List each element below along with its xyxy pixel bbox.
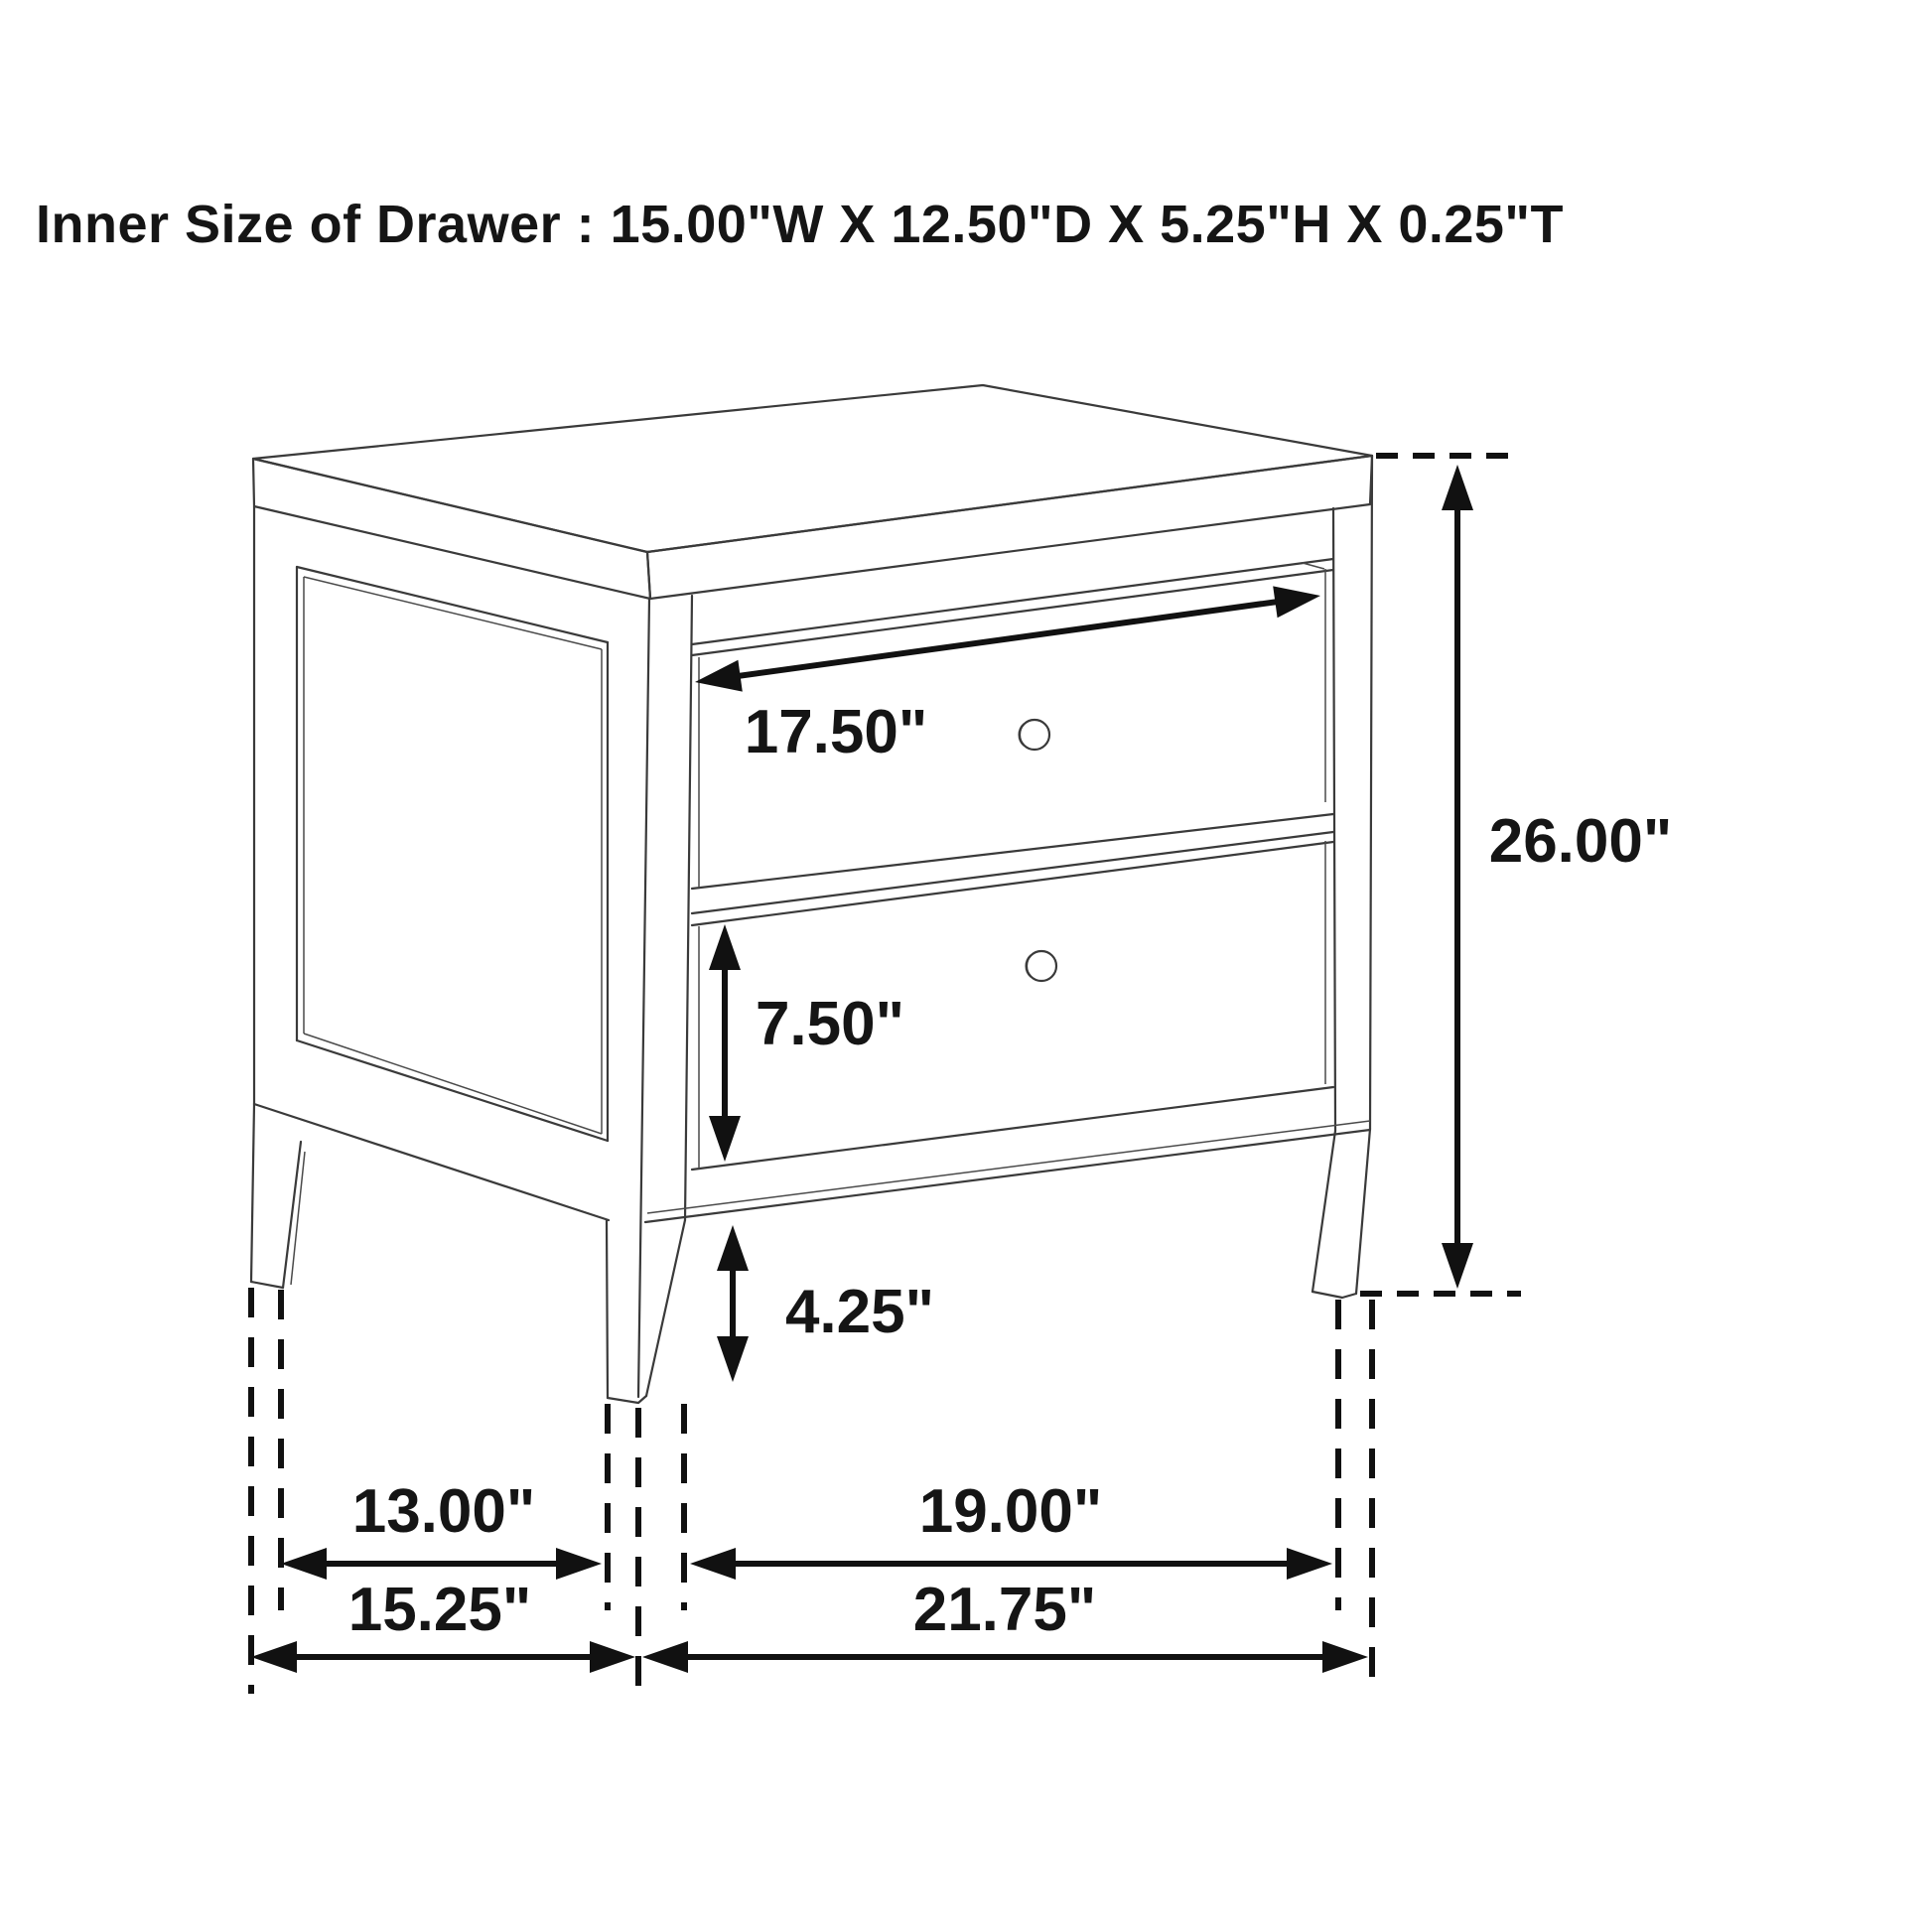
front-right-leg — [1312, 1129, 1370, 1298]
dim-arrow-leg-clearance — [717, 1225, 749, 1382]
dim-arrow-front-overall — [642, 1641, 1368, 1673]
front-left-leg-side-edge — [607, 1220, 608, 1398]
front-left-leg-bottom — [608, 1396, 646, 1403]
side-bottom-rail-inner — [297, 1040, 608, 1141]
side-panel-groove-bottom — [304, 1034, 602, 1134]
front-left-leg — [607, 1220, 685, 1403]
top-slab-left-face — [253, 459, 650, 599]
drawer1-opening-top-edge — [692, 559, 1333, 644]
drawer1-face-top-edge — [692, 570, 1333, 655]
front-left-leg-taper-edge — [646, 1220, 685, 1396]
dim-arrow-side-overall — [251, 1641, 635, 1673]
left-side-panel — [254, 506, 609, 1220]
dim-label-drawer-width: 17.50" — [745, 698, 928, 766]
dim-label-side-inner: 13.00" — [352, 1477, 536, 1546]
apron-bottom-edge — [645, 1130, 1370, 1222]
back-left-leg — [251, 1104, 305, 1288]
drawer-2-knob — [1027, 951, 1056, 981]
right-stile-inner-edge — [1333, 508, 1335, 1131]
front-right-leg-bottom — [1312, 1292, 1356, 1298]
divider-rail-bottom-edge — [692, 832, 1333, 913]
drawer2-face-bottom-edge — [692, 1087, 1333, 1170]
diagram-page: Inner Size of Drawer : 15.00"W X 12.50"D… — [0, 0, 1932, 1932]
drawer2-face-top-edge — [692, 842, 1333, 925]
front-face — [638, 456, 1372, 1397]
dimension-diagram: Inner Size of Drawer : 15.00"W X 12.50"D… — [0, 0, 1932, 1932]
dim-arrow-overall-height — [1442, 465, 1473, 1289]
front-right-leg-outer-edge — [1356, 1129, 1370, 1294]
apron-chamfer-line — [647, 1121, 1370, 1213]
left-stile-inner-edge — [685, 596, 692, 1220]
side-bottom-edge — [254, 1104, 609, 1220]
nightstand-drawing — [251, 385, 1372, 1403]
front-right-corner-edge — [1370, 456, 1372, 1129]
front-right-leg-taper-edge — [1312, 1131, 1335, 1292]
dimension-annotations: 17.50" 26.00" 7.50" 4 — [251, 456, 1672, 1694]
dim-label-side-overall: 15.25" — [348, 1576, 532, 1644]
diagram-title: Inner Size of Drawer : 15.00"W X 12.50"D… — [36, 195, 1564, 254]
dim-label-overall-height: 26.00" — [1489, 807, 1673, 876]
dim-arrow-drawer-height — [709, 924, 741, 1162]
front-left-corner-edge — [638, 599, 649, 1397]
drawer-1-knob — [1020, 720, 1049, 750]
top-slab — [253, 385, 1372, 599]
dim-label-drawer-height: 7.50" — [756, 990, 904, 1058]
dim-label-front-inner: 19.00" — [919, 1477, 1103, 1546]
dim-label-leg-clearance: 4.25" — [785, 1278, 934, 1346]
drawer1-face-bottom-edge — [692, 814, 1333, 889]
back-left-leg-outer-edge — [251, 1104, 254, 1282]
side-panel-groove-top — [304, 577, 602, 649]
dim-label-front-overall: 21.75" — [913, 1576, 1097, 1644]
back-left-leg-bottom — [251, 1282, 283, 1288]
drawer-box-hint-line — [1303, 563, 1324, 569]
top-slab-front-face — [647, 456, 1372, 599]
